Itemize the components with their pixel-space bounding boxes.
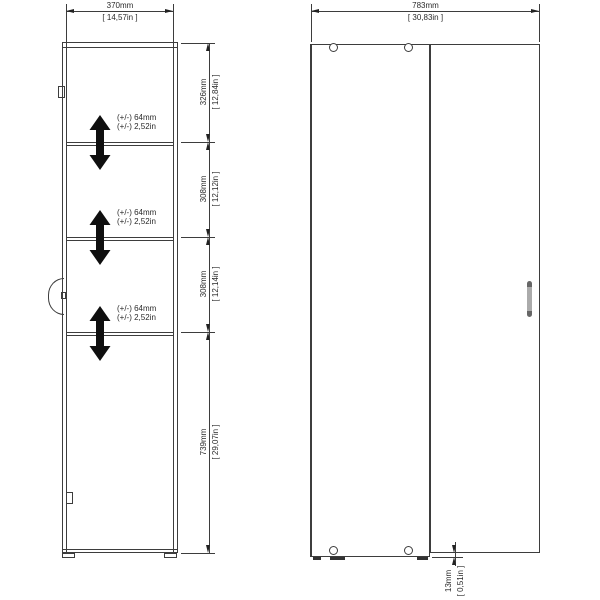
dim-arrow-icon xyxy=(452,545,456,553)
shelf-adjust-mm: (+/-) 64mm xyxy=(117,208,156,217)
shelf-line xyxy=(67,332,173,333)
side-width-mm: 783mm xyxy=(311,1,540,10)
shelf-adjust-mm: (+/-) 64mm xyxy=(117,304,156,313)
dimension-line xyxy=(311,11,540,12)
dim-arrow-icon xyxy=(206,545,210,553)
shelf-adjust-mm: (+/-) 64mm xyxy=(117,113,156,122)
section-dim-mm: 326mm xyxy=(200,79,208,106)
shelf-line xyxy=(67,145,173,146)
shelf-adjust-arrow-icon xyxy=(89,306,111,361)
foot xyxy=(62,553,75,558)
section-dim-mm: 739mm xyxy=(200,429,208,456)
shelf-adjust-arrow-icon xyxy=(89,115,111,170)
plinth-dim-inch: [ 0,51in ] xyxy=(457,566,465,597)
door-edge-line xyxy=(66,42,67,553)
side-width-inch: [ 30,83in ] xyxy=(311,13,540,22)
extension-line xyxy=(181,553,215,554)
cam-lock-circle-icon xyxy=(329,546,338,555)
shelf-line xyxy=(67,240,173,241)
front-width-mm: 370mm xyxy=(66,1,174,10)
shelf-adjust-inch: (+/-) 2,52in xyxy=(117,122,156,131)
floor-glide xyxy=(330,557,345,560)
dim-arrow-icon xyxy=(206,142,210,150)
hinge-icon xyxy=(58,86,65,98)
section-dim-inch: [ 12,84in ] xyxy=(212,74,220,109)
section-dim-inch: [ 29,07in ] xyxy=(212,424,220,459)
dim-arrow-icon xyxy=(206,43,210,51)
side-panel-outline xyxy=(430,44,540,553)
section-dim-mm: 308mm xyxy=(200,271,208,298)
dim-arrow-icon xyxy=(452,557,456,565)
shelf-line xyxy=(67,237,173,238)
side-panel-line xyxy=(173,42,174,553)
handle-icon xyxy=(527,281,532,317)
section-dim-mm: 308mm xyxy=(200,176,208,203)
furniture-dimension-drawing: (+/-) 64mm (+/-) 2,52in (+/-) 64mm (+/-)… xyxy=(0,0,600,600)
bottom-panel-line xyxy=(62,549,178,550)
dim-arrow-icon xyxy=(206,324,210,332)
dim-arrow-icon xyxy=(206,237,210,245)
shelf-adjust-inch: (+/-) 2,52in xyxy=(117,217,156,226)
section-dim-inch: [ 12,12in ] xyxy=(212,171,220,206)
dim-arrow-icon xyxy=(206,229,210,237)
top-panel-line xyxy=(62,47,178,48)
cam-lock-circle-icon xyxy=(329,43,338,52)
shelf-line xyxy=(67,335,173,336)
dim-arrow-icon xyxy=(206,332,210,340)
cam-lock-circle-icon xyxy=(404,546,413,555)
door-handle-mount xyxy=(61,292,66,299)
shelf-adjust-label: (+/-) 64mm (+/-) 2,52in xyxy=(117,208,156,226)
section-dim-inch: [ 12,14in ] xyxy=(212,266,220,301)
shelf-adjust-inch: (+/-) 2,52in xyxy=(117,313,156,322)
floor-glide xyxy=(313,557,321,560)
shelf-adjust-label: (+/-) 64mm (+/-) 2,52in xyxy=(117,113,156,131)
floor-glide xyxy=(417,557,428,560)
dimension-chain-line xyxy=(209,43,210,553)
extension-line xyxy=(432,557,463,558)
shelf-adjust-arrow-icon xyxy=(89,210,111,265)
hinge-icon xyxy=(66,492,73,504)
dimension-line xyxy=(66,11,174,12)
shelf-adjust-label: (+/-) 64mm (+/-) 2,52in xyxy=(117,304,156,322)
dim-arrow-icon xyxy=(206,134,210,142)
plinth-dim-mm: 13mm xyxy=(445,570,453,592)
cam-lock-circle-icon xyxy=(404,43,413,52)
foot xyxy=(164,553,177,558)
front-width-inch: [ 14,57in ] xyxy=(66,13,174,22)
door-panel-outline xyxy=(310,44,430,557)
shelf-line xyxy=(67,142,173,143)
